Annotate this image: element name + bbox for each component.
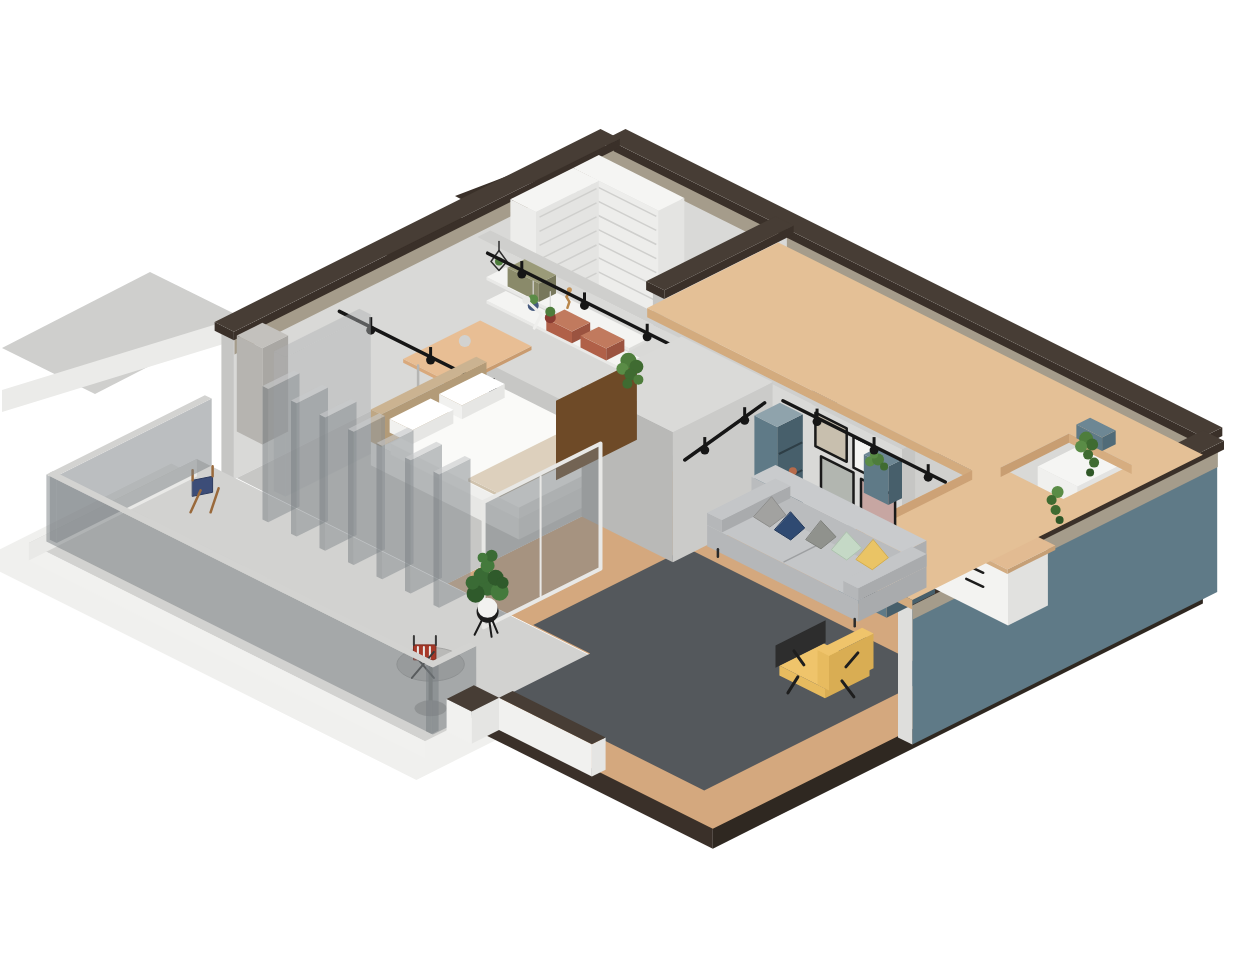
panel-trailing-plant (622, 379, 632, 389)
low-front-wall (592, 737, 606, 776)
macrame-planter-red (545, 307, 555, 317)
loft-plant-trail-1 (1089, 458, 1099, 468)
track-spot (924, 473, 933, 482)
glass-louver-5 (377, 443, 383, 579)
left-wall (221, 331, 234, 480)
fiddle-leaf-plant (486, 550, 498, 562)
desk-task-lamp (522, 296, 530, 304)
glass-louver-6 (405, 457, 411, 593)
track-spot (580, 301, 589, 310)
deck-chair-blue-seat (193, 476, 213, 496)
armchair-back (818, 650, 829, 690)
loft-plant-trail-2 (1051, 505, 1061, 515)
track-spot (870, 446, 879, 455)
desk-globe-lamp (459, 335, 471, 347)
glass-louver-4 (348, 429, 354, 565)
track-spot (740, 416, 749, 425)
glass-louver-7 (439, 459, 470, 608)
track-spot (643, 332, 652, 341)
glass-louver-2 (291, 400, 297, 536)
fiddle-leaf-plant (478, 553, 488, 563)
loft-plant-trail-1 (1086, 439, 1098, 451)
glass-louver-1 (263, 386, 269, 522)
fiddle-leaf-plant (466, 576, 480, 590)
right-end-wall (898, 595, 912, 745)
track-spot (426, 356, 435, 365)
corner-curtain-column (237, 336, 263, 445)
niche-plants (880, 463, 888, 471)
glass-louver-7 (434, 472, 440, 608)
loft-plant-trail-1 (1083, 450, 1093, 460)
loft-plant-trail-2 (1056, 516, 1064, 524)
track-spot (517, 270, 526, 279)
fiddle-leaf-plant (497, 577, 509, 589)
wall-planter-niche (888, 460, 902, 505)
scene-canvas (0, 0, 1259, 961)
loft-plant-trail-1 (1086, 469, 1094, 477)
apartment-axonometric-render (0, 0, 1259, 961)
loft-plant-trail-2 (1047, 495, 1057, 505)
track-spot (813, 417, 822, 426)
track-spot (700, 446, 709, 455)
balcony-railing-return (426, 664, 433, 734)
panel-trailing-plant (633, 375, 643, 385)
glass-louver-3 (320, 415, 326, 551)
